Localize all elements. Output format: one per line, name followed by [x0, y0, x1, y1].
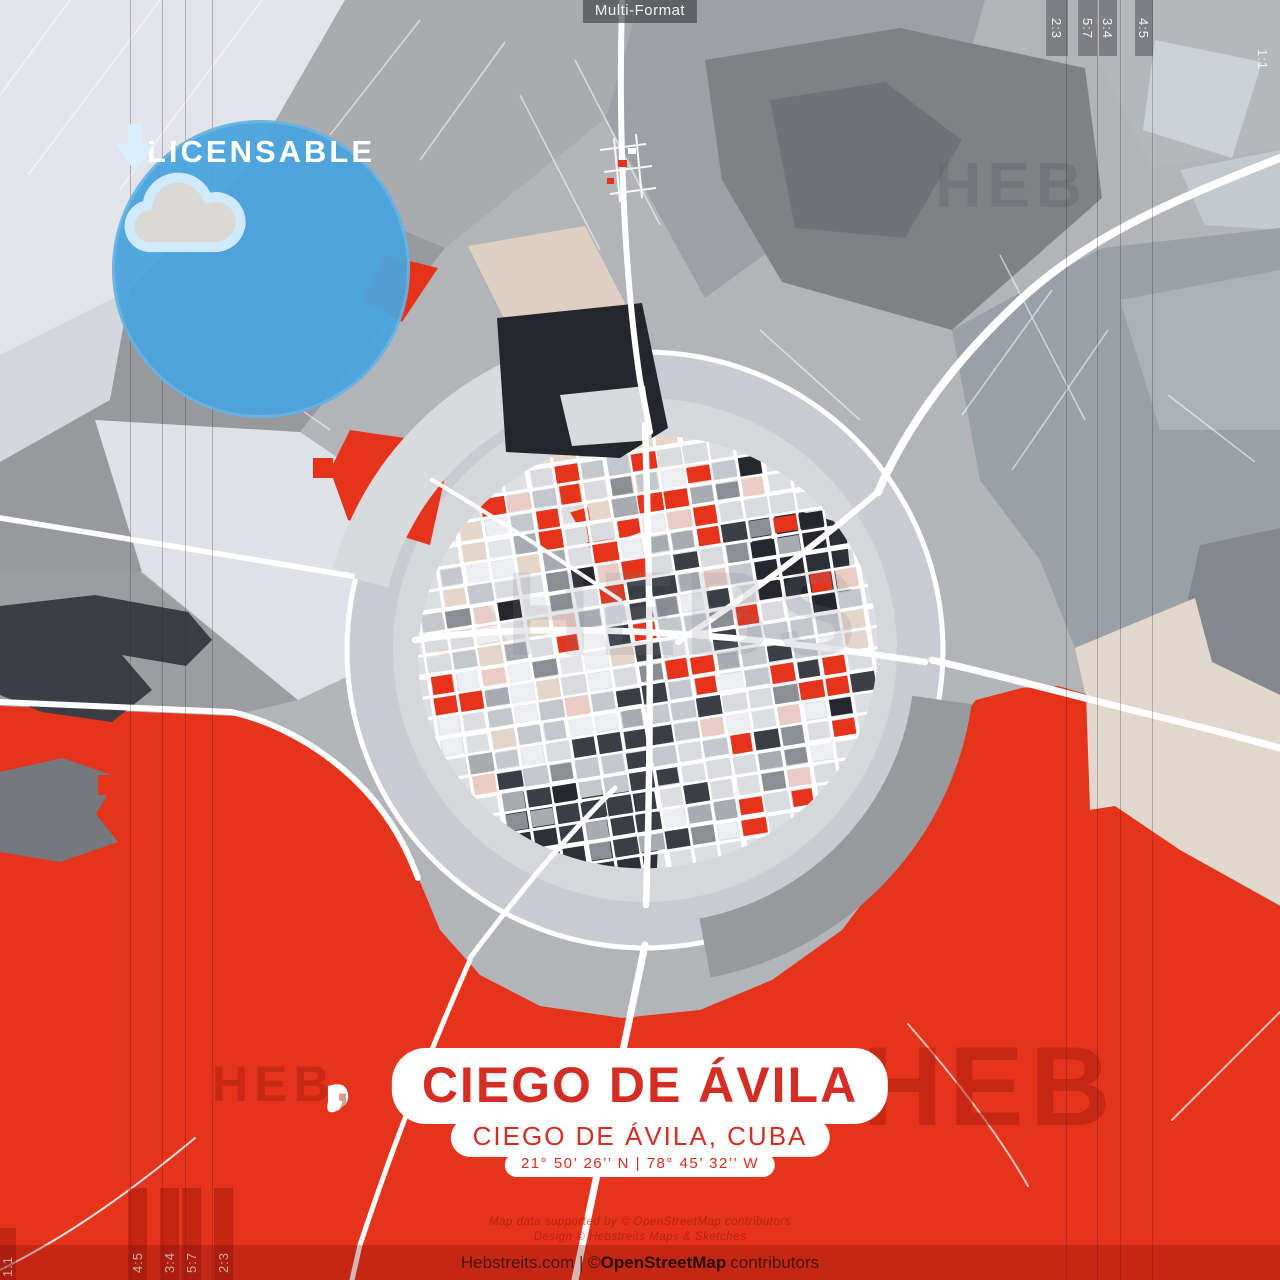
city-block: [550, 762, 574, 781]
city-block: [536, 508, 560, 529]
city-block: [761, 771, 786, 792]
city-block: [431, 674, 455, 695]
city-block: [459, 690, 485, 712]
city-block: [545, 740, 571, 762]
city-block: [521, 745, 545, 765]
licensable-badge: LICENSABLE: [112, 120, 410, 418]
title-block: CIEGO DE ÁVILA CIEGO DE ÁVILA, CUBA 21° …: [392, 1048, 888, 1177]
city-block: [742, 476, 765, 497]
city-block: [530, 467, 553, 487]
city-block: [763, 791, 791, 813]
city-block: [591, 691, 616, 712]
city-block: [611, 496, 638, 518]
ratio-marker-4-5-top: 4:5: [1135, 0, 1153, 56]
download-arrow-icon: [112, 124, 158, 174]
city-block: [509, 682, 537, 704]
city-block: [721, 521, 749, 543]
city-block: [660, 467, 687, 489]
coordinates-blob: 21° 50’ 26’’ N | 78° 45’ 32’’ W: [505, 1153, 775, 1177]
city-block: [691, 824, 716, 845]
city-block: [538, 699, 565, 721]
city-block: [574, 757, 600, 779]
city-block: [491, 728, 517, 750]
city-block: [581, 460, 605, 479]
city-block: [522, 765, 550, 787]
city-block: [744, 496, 770, 518]
city-block: [441, 737, 464, 757]
credit-map-data: Map data supported by © OpenStreetMap co…: [0, 1216, 1280, 1228]
city-block: [590, 521, 616, 542]
city-block: [610, 476, 633, 496]
ratio-marker-5-7-top: 5:7: [1078, 0, 1097, 56]
city-block: [554, 463, 580, 484]
city-block: [606, 794, 634, 816]
ratio-guide-line: [1066, 0, 1067, 1280]
city-block: [733, 754, 757, 774]
city-block: [465, 562, 490, 584]
watermark-center: HEBS: [505, 545, 862, 683]
city-block: [637, 492, 665, 514]
city-block: [651, 745, 678, 767]
city-block: [663, 488, 689, 509]
city-block: [719, 501, 744, 523]
city-block: [730, 733, 753, 755]
city-block: [678, 741, 702, 762]
city-block: [587, 501, 611, 521]
city-block: [556, 803, 581, 824]
city-subtitle: CIEGO DE ÁVILA, CUBA: [473, 1121, 808, 1151]
city-block: [611, 816, 635, 836]
city-block: [585, 820, 609, 841]
city-block: [621, 708, 644, 728]
coordinates: 21° 50’ 26’’ N | 78° 45’ 32’’ W: [521, 1155, 759, 1172]
city-block: [748, 518, 772, 537]
city-block: [706, 758, 733, 780]
city-block: [456, 670, 480, 692]
city-block: [700, 717, 725, 737]
city-block: [572, 736, 597, 758]
ratio-guide-line: [1120, 0, 1121, 1280]
format-label: Multi-Format: [583, 0, 697, 23]
city-subtitle-blob: CIEGO DE ÁVILA, CUBA: [451, 1118, 830, 1157]
city-block: [589, 841, 612, 861]
watermark-bottom-right: HEB: [862, 1022, 1116, 1151]
city-block: [440, 567, 463, 586]
city-block: [754, 728, 781, 750]
city-block: [601, 753, 625, 774]
city-block: [564, 694, 591, 716]
ratio-marker-2-3-top: 2:3: [1046, 0, 1068, 56]
city-block: [467, 582, 494, 604]
city-block: [690, 485, 714, 504]
city-block: [682, 442, 709, 464]
city-block: [468, 752, 495, 774]
city-block: [502, 790, 526, 811]
city-block: [656, 767, 679, 786]
city-block: [713, 799, 738, 821]
city-block: [664, 828, 690, 849]
ratio-marker-1-1-top: 1:1: [1255, 49, 1270, 70]
city-block: [711, 779, 734, 799]
ratio-guide-line: [1097, 0, 1098, 1280]
credit-design: Design © Hebstreits Maps & Sketches: [0, 1231, 1280, 1243]
city-block: [517, 724, 542, 745]
city-block: [693, 504, 718, 526]
city-block: [585, 480, 608, 500]
city-block: [697, 526, 721, 547]
attribution-bar: Hebstreits.com | © OpenStreetMap contrib…: [0, 1245, 1280, 1280]
city-block: [641, 682, 667, 704]
map-poster: HEB HEBS HEB, HEB 2:3 5:7 3:4 4:5 1:1 4:…: [0, 0, 1280, 1280]
city-block: [696, 695, 723, 717]
city-block: [624, 729, 648, 749]
city-block: [663, 807, 687, 829]
city-block: [777, 704, 801, 726]
city-block: [832, 717, 857, 736]
city-block: [749, 687, 773, 708]
attribution-suffix: contributors: [730, 1253, 819, 1273]
city-block: [530, 808, 555, 827]
city-block: [472, 773, 497, 795]
city-block: [565, 526, 589, 545]
city-block: [787, 767, 812, 787]
city-block: [683, 782, 710, 804]
city-block: [477, 644, 504, 666]
city-block: [433, 695, 458, 715]
watermark-left: HEB,: [212, 1055, 355, 1113]
city-title: CIEGO DE ÁVILA: [422, 1057, 858, 1113]
city-block: [544, 720, 567, 741]
city-block: [804, 701, 827, 720]
attribution-brand: OpenStreetMap: [601, 1253, 727, 1273]
city-block: [784, 747, 808, 766]
city-block: [438, 716, 461, 736]
city-block: [443, 588, 466, 607]
city-block: [829, 697, 853, 717]
city-title-blob: CIEGO DE ÁVILA: [392, 1048, 888, 1124]
ratio-marker-3-4-top: 3:4: [1099, 0, 1117, 56]
city-block: [461, 541, 487, 562]
city-block: [769, 492, 796, 514]
attribution-prefix: Hebstreits.com | ©: [461, 1253, 601, 1273]
city-block: [725, 712, 751, 733]
city-block: [559, 484, 582, 505]
ratio-guide-line: [1152, 0, 1153, 1280]
city-block: [421, 612, 444, 633]
city-block: [597, 732, 623, 754]
city-block: [781, 725, 805, 747]
